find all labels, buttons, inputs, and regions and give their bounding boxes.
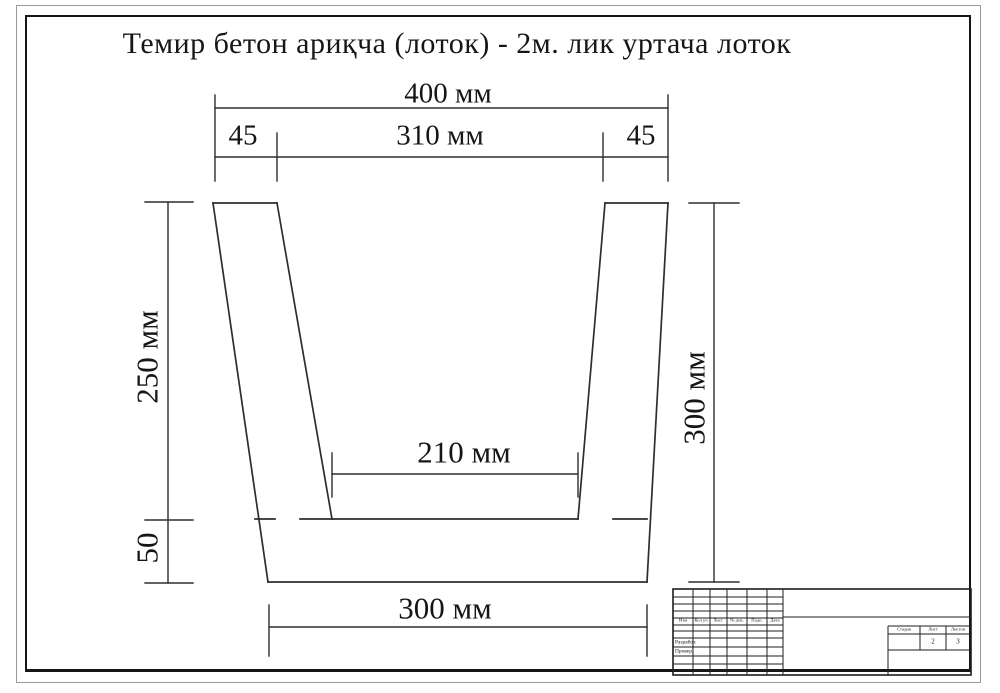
titleblock-stage-label: Стадия <box>897 628 911 633</box>
dim-top-width-label: 400 мм <box>404 80 491 109</box>
title-block-grid <box>673 589 971 675</box>
titleblock-sheets-value: 3 <box>956 639 960 646</box>
dim-base-thickness-label: 50 <box>132 533 163 564</box>
titleblock-col-list: Лист <box>713 619 723 624</box>
titleblock-sheet-value: 2 <box>931 639 935 646</box>
dim-total-height-label: 300 мм <box>679 351 710 444</box>
titleblock-checked-label: Провер. <box>675 649 693 654</box>
dim-wall-height-label: 250 мм <box>132 310 163 403</box>
dim-right-45-label: 45 <box>627 122 656 151</box>
drawing-sheet: Темир бетон ариқча (лоток) - 2м. лик урт… <box>0 0 1000 693</box>
titleblock-col-data: Дата <box>770 619 779 624</box>
channel-outline <box>213 203 668 582</box>
titleblock-col-podp: Подп. <box>751 619 762 624</box>
titleblock-sheets-label: Листов <box>951 628 965 633</box>
dim-inner-top-label: 310 мм <box>396 122 483 151</box>
titleblock-col-izm: Изм <box>679 619 687 624</box>
dim-left-45-label: 45 <box>229 122 258 151</box>
titleblock-col-koluch: Кол.уч <box>694 619 707 624</box>
dim-bottom-width-label: 300 мм <box>398 593 491 624</box>
titleblock-developed-label: Разработ. <box>675 640 696 645</box>
dim-inner-bottom-label: 210 мм <box>417 437 510 468</box>
titleblock-col-ndok: № док. <box>730 619 744 624</box>
titleblock-sheet-label: Лист <box>928 628 938 633</box>
